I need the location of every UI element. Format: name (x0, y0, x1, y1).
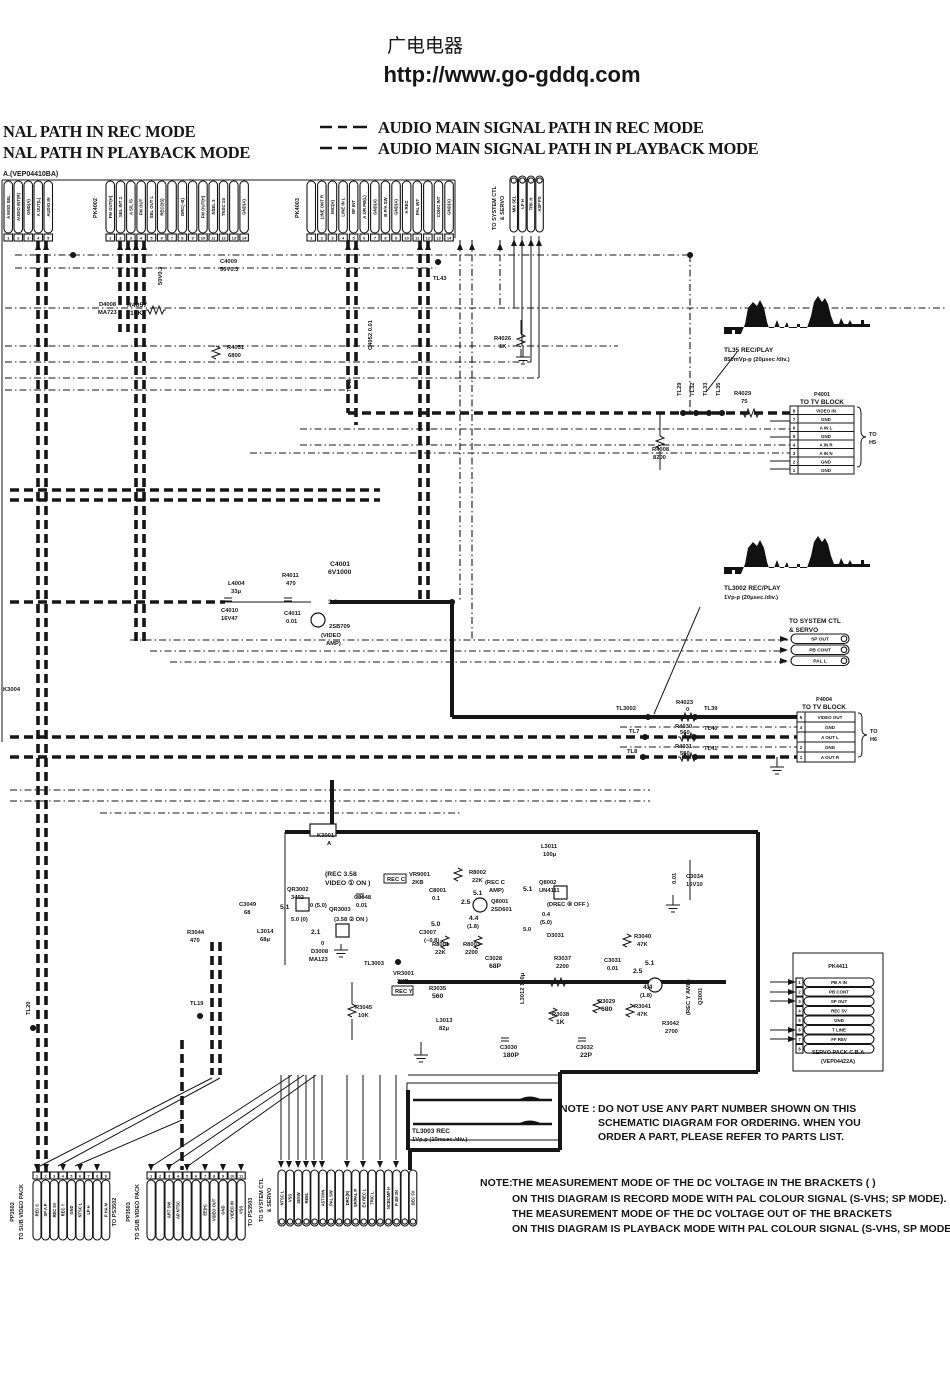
svg-text:2KB: 2KB (397, 979, 409, 985)
note-line: ON THIS DIAGRAM IS RECORD MODE WITH PAL … (512, 1193, 946, 1205)
svg-text:D4008: D4008 (99, 302, 117, 308)
svg-text:0.01: 0.01 (672, 872, 678, 884)
note-line: ORDER A PART, PLEASE REFER TO PARTS LIST… (598, 1131, 844, 1143)
connector-pin: B P/A SW8 (381, 181, 390, 241)
svg-text:68P: 68P (489, 963, 502, 970)
svg-text:EE(H): EE(H) (203, 1204, 208, 1216)
waveform-label: TL35 REC/PLAY (724, 347, 774, 354)
note-measurement: NOTE: THE MEASUREMENT MODE OF THE DC VOL… (480, 1177, 950, 1235)
svg-text:5.0: 5.0 (523, 927, 531, 933)
svg-text:GND(A): GND(A) (372, 199, 377, 215)
svg-text:RF INT: RF INT (351, 200, 356, 214)
connector-pin: NSEL 311 (209, 181, 218, 241)
connector-title: TO TV BLOCK (800, 399, 844, 406)
svg-text:A IN R: A IN R (819, 442, 833, 447)
svg-text:Q8001: Q8001 (491, 899, 509, 905)
svg-text:FM OUT(H): FM OUT(H) (201, 195, 206, 218)
svg-text:QR3003: QR3003 (329, 907, 351, 913)
svg-text:EX REC L: EX REC L (361, 1188, 366, 1207)
page-header: 广电电器 http://www.go-gddq.com (383, 35, 640, 87)
connector-pin: VIDEO IN10 (228, 1172, 236, 1240)
svg-text:K3004: K3004 (3, 687, 21, 693)
svg-text:LP H: LP H (520, 199, 525, 208)
connector-sysctl-top: TO SYSTEM CTL & SERVO MIX SELLP HTRK HAS… (492, 176, 543, 232)
connector-pin: REC Y4 (59, 1172, 67, 1240)
dest-label: H6 (870, 737, 877, 743)
transistor-video-amp (311, 613, 325, 627)
svg-text:TL43: TL43 (433, 276, 447, 282)
svg-text:TL32: TL32 (690, 382, 696, 396)
svg-text:(REC Y AMP): (REC Y AMP) (686, 979, 692, 1015)
svg-text:REC Y: REC Y (395, 989, 413, 995)
svg-text:TL39: TL39 (704, 706, 718, 712)
svg-text:5.1: 5.1 (280, 904, 290, 911)
connector-title: TO SYSTEM CTL (492, 185, 498, 230)
svg-text:(−0.8): (−0.8) (424, 938, 439, 944)
svg-text:VIDEO IN: VIDEO IN (816, 408, 836, 413)
svg-text:GND: GND (69, 1205, 74, 1214)
svg-text:560: 560 (680, 730, 690, 736)
connector-pin: 36SW (294, 1170, 302, 1226)
svg-text:50V0.3: 50V0.3 (158, 266, 164, 285)
connector-pin: REC 5V4 (796, 1007, 874, 1016)
connector-pin: TNSC 1S12 (219, 181, 228, 241)
connector-pin: AP NTSC4 (174, 1172, 182, 1240)
svg-text:REC 5V: REC 5V (831, 1009, 847, 1014)
connector-pin: A MOD SEL1 (4, 181, 13, 241)
connector-pin: FM OUT4 (137, 181, 146, 241)
connector-title: TO SYSTEM CTL (789, 618, 841, 625)
svg-text:L3011: L3011 (541, 844, 558, 850)
svg-text:TNSC 1S: TNSC 1S (221, 198, 226, 216)
svg-text:C4010: C4010 (221, 608, 238, 614)
svg-text:GND: GND (834, 1018, 844, 1023)
connector-ref: P4001 (814, 392, 830, 398)
svg-text:5.1: 5.1 (523, 886, 533, 893)
connector-pin: LP H (519, 176, 527, 232)
transistor-rec-c-amp (473, 898, 487, 912)
svg-text:A OUT R: A OUT R (821, 755, 840, 760)
connector-pin: VIDEO OUT8 (210, 1172, 218, 1240)
connector-ref: P4004 (816, 697, 833, 703)
svg-text:TL19: TL19 (190, 1001, 204, 1007)
svg-text:R3041: R3041 (634, 1004, 652, 1010)
svg-text:7: 7 (793, 417, 796, 422)
svg-text:3: 3 (793, 451, 796, 456)
svg-text:DEC 5V: DEC 5V (411, 1190, 416, 1205)
svg-text:VIDEO ① ON ): VIDEO ① ON ) (325, 879, 370, 887)
svg-text:A REC: A REC (404, 200, 409, 213)
connector-pin: SP OUT (791, 634, 849, 644)
svg-text:6: 6 (793, 425, 796, 430)
svg-text:GND: GND (821, 468, 832, 473)
legend-line1-right: AUDIO MAIN SIGNAL PATH IN REC MODE (378, 118, 704, 137)
legend: NAL PATH IN REC MODE NAL PATH IN PLAYBAC… (3, 118, 759, 162)
svg-text:C3028: C3028 (485, 956, 503, 962)
svg-text:C4009: C4009 (220, 259, 238, 265)
connector-pin: GND5 (67, 1172, 75, 1240)
svg-text:82μ: 82μ (439, 1026, 449, 1032)
svg-text:PB A IN: PB A IN (831, 980, 847, 985)
svg-text:36SW: 36SW (296, 1192, 301, 1203)
svg-text:5.0: 5.0 (431, 921, 441, 928)
svg-text:16V47: 16V47 (221, 616, 238, 622)
svg-text:12: 12 (221, 236, 226, 241)
connector-pin: SP/PAL P (352, 1170, 360, 1226)
legend-line2-left: NAL PATH IN PLAYBACK MODE (3, 143, 250, 162)
connector-cluster-a: A MOD SEL1AUDIO INT(R)2GND(A)3A OUT(L)4A… (4, 181, 53, 241)
connector-sysctl-mid: TO SYSTEM CTL & SERVO SP OUTPB CONTPAL L (789, 618, 849, 666)
connector-title: TO SUB VIDEO PACK (19, 1184, 25, 1240)
svg-text:D3008: D3008 (311, 949, 329, 955)
svg-text:TL45: TL45 (347, 378, 353, 392)
svg-text:A MOD SEL: A MOD SEL (6, 195, 11, 219)
connector-ref-pk4003: PK4003 (295, 198, 301, 218)
connector-pin: RF INT5 (349, 181, 358, 241)
svg-text:PAL L: PAL L (813, 659, 826, 665)
connector-pin: GND(A)7 (371, 181, 380, 241)
svg-text:R3044: R3044 (187, 930, 205, 936)
legend-line2-right: AUDIO MAIN SIGNAL PATH IN PLAYBACK MODE (378, 139, 759, 158)
connector-title: TO SUB VIDEO PACK (135, 1184, 141, 1240)
svg-text:R4029: R4029 (734, 391, 752, 397)
connector-pin: ASTVHN (319, 1170, 327, 1226)
connector-pin: GND(A)9 (392, 181, 401, 241)
connector-pin: 2 (156, 1172, 164, 1240)
connector-pin: AUDIO IN5 (44, 181, 53, 241)
svg-text:C3007: C3007 (419, 930, 436, 936)
connector-pin: GND(A)14 (445, 181, 454, 241)
svg-text:SP A P: SP A P (43, 1203, 48, 1216)
note-line: ON THIS DIAGRAM IS PLAYBACK MODE WITH PA… (512, 1223, 950, 1235)
svg-text:1: 1 (793, 468, 796, 473)
svg-text:47K: 47K (637, 942, 648, 948)
connector-pin: CONC INT13 (434, 181, 443, 241)
svg-text:(DREC ⑧ OFF ): (DREC ⑧ OFF ) (547, 901, 589, 908)
svg-text:SP/PAL P: SP/PAL P (353, 1189, 358, 1208)
connector-pin (335, 1170, 343, 1226)
note-line: SCHEMATIC DIAGRAM FOR ORDERING. WHEN YOU (598, 1117, 861, 1129)
svg-text:AUDIO INT(R): AUDIO INT(R) (16, 192, 21, 220)
svg-text:0: 0 (686, 707, 689, 713)
svg-text:14: 14 (242, 236, 247, 241)
svg-text:R3029: R3029 (598, 999, 616, 1005)
svg-text:AMP): AMP) (326, 641, 341, 647)
connector-pin (311, 1170, 319, 1226)
svg-text:5.1: 5.1 (473, 890, 483, 897)
svg-text:8: 8 (793, 408, 796, 413)
svg-text:FF REV: FF REV (831, 1037, 847, 1042)
dest-label: TO (870, 729, 878, 735)
svg-text:(3.58 ② ON ): (3.58 ② ON ) (334, 916, 368, 923)
svg-text:12: 12 (426, 236, 431, 241)
svg-text:R3037: R3037 (554, 956, 571, 962)
note-ordering: NOTE : DO NOT USE ANY PART NUMBER SHOWN … (560, 1103, 861, 1143)
svg-text:1K: 1K (556, 1019, 565, 1026)
connector-pin: SP A P2 (42, 1172, 50, 1240)
svg-text:R3042: R3042 (662, 1021, 679, 1027)
connector-pin: SEL OUT L5 (147, 181, 156, 241)
svg-text:4: 4 (793, 442, 796, 447)
connector-pin: AUDIO INT(R)2 (14, 181, 23, 241)
svg-text:VIDEO OUT: VIDEO OUT (818, 715, 843, 720)
connector-pin: PB A IN1 (796, 978, 874, 987)
svg-text:A IN N: A IN N (819, 451, 832, 456)
connector-pin: 12 (424, 181, 433, 241)
svg-text:680: 680 (601, 1006, 613, 1013)
connector-pin: T LINE6 (796, 1026, 874, 1035)
svg-text:R4026: R4026 (494, 336, 512, 342)
waveform-tl35: TL35 REC/PLAY 850mVp-p (20μsec /div.) (724, 296, 870, 363)
dest-label: H5 (869, 440, 876, 446)
svg-text:GND: GND (821, 459, 832, 464)
svg-text:75: 75 (741, 399, 748, 405)
waveform-label: TL3003 REC (412, 1128, 450, 1135)
svg-text:R3035: R3035 (429, 986, 447, 992)
svg-text:MIC(H): MIC(H) (330, 200, 335, 214)
svg-text:Q3001: Q3001 (698, 987, 704, 1005)
svg-text:GND: GND (221, 1205, 226, 1214)
svg-text:MA723: MA723 (98, 310, 117, 316)
svg-text:560: 560 (680, 751, 690, 757)
svg-text:3.6: 3.6 (328, 599, 338, 606)
svg-text:(REC 3.58: (REC 3.58 (325, 871, 357, 878)
svg-text:CONC INT: CONC INT (436, 196, 441, 217)
svg-text:SEL INT 2: SEL INT 2 (118, 196, 123, 217)
part-labels: C4009 50V0.3 50V0.3 D4008 MA723 R4057 10… (3, 259, 752, 1059)
note-label: NOTE: (480, 1177, 513, 1189)
svg-text:5.1: 5.1 (645, 960, 655, 967)
svg-text:VR9001: VR9001 (409, 872, 431, 878)
connector-pin (401, 1170, 409, 1226)
svg-text:68: 68 (244, 910, 251, 916)
svg-text:GND: GND (821, 417, 832, 422)
svg-text:REC(3S): REC(3S) (159, 198, 164, 216)
connector-pin: DEC 5V (409, 1170, 417, 1226)
svg-text:2SD601: 2SD601 (491, 907, 513, 913)
connector-pin: 1 (307, 181, 316, 241)
svg-text:NTSC L: NTSC L (279, 1190, 284, 1205)
note-line: THE MEASUREMENT MODE OF THE DC VOLTAGE O… (512, 1208, 892, 1220)
connector-pin: FM OUT(H)1 (106, 181, 115, 241)
connector-title: TO SYSTEM CTL (259, 1177, 265, 1222)
connector-pin: P 4M 3N (393, 1170, 401, 1226)
svg-text:4.4: 4.4 (643, 984, 653, 991)
svg-text:K3001: K3001 (317, 833, 335, 839)
connector-pin: PAL L (791, 656, 849, 666)
connector-pin: MIC(H)3 (328, 181, 337, 241)
svg-text:C3049: C3049 (239, 902, 257, 908)
connector-pin: NCBCMP H (385, 1170, 393, 1226)
svg-text:ART SW: ART SW (167, 1202, 172, 1218)
svg-text:2SB709: 2SB709 (329, 624, 351, 630)
svg-text:SP OUT: SP OUT (831, 999, 848, 1004)
connector-pin: 5 (183, 1172, 191, 1240)
svg-text:VSS: VSS (239, 1206, 244, 1214)
svg-text:GND(A): GND(A) (447, 199, 452, 215)
connector-pin: ASP PS (536, 176, 544, 232)
svg-text:R4051: R4051 (227, 345, 245, 351)
connector-pin: VSS11 (237, 1172, 245, 1240)
board-outline: A.(VEP04410BA) (2, 171, 455, 742)
svg-text:R3038: R3038 (552, 1012, 570, 1018)
connector-pin: EX REC L (360, 1170, 368, 1226)
svg-text:C4011: C4011 (284, 611, 302, 617)
svg-text:VSS: VSS (288, 1194, 293, 1202)
connector-pin: VSS (286, 1170, 294, 1226)
svg-text:5: 5 (800, 715, 803, 720)
svg-text:TL40: TL40 (704, 726, 718, 732)
svg-text:GND: GND (825, 745, 836, 750)
svg-text:47K: 47K (637, 1012, 648, 1018)
connector-pin: PAL INT11 (413, 181, 422, 241)
site-name: 广电电器 (387, 35, 463, 57)
connector-sysctl-bottom: TO SYSTEM CTL & SERVO NTSC LVSS36SWREELA… (259, 1170, 417, 1226)
svg-text:R8002: R8002 (469, 870, 486, 876)
dest-label: TO PS3502 (112, 1198, 118, 1227)
svg-text:TL7: TL7 (629, 729, 639, 735)
svg-text:GND(A): GND(A) (26, 199, 31, 215)
svg-text:2200: 2200 (556, 964, 569, 970)
transistor-qr3003 (336, 924, 349, 937)
svg-text:2700: 2700 (665, 1029, 678, 1035)
svg-text:10K: 10K (130, 310, 143, 317)
svg-text:A OUT(L): A OUT(L) (36, 197, 41, 216)
svg-text:0.01: 0.01 (286, 619, 298, 625)
connector-pin: SEL INT 22 (116, 181, 125, 241)
waveform-tl3003: TL3003 REC 1Vp.p (10msec./div.) (407, 1083, 560, 1143)
svg-text:68μ: 68μ (260, 937, 270, 943)
svg-text:TL3003: TL3003 (364, 961, 385, 967)
svg-text:14: 14 (447, 236, 452, 241)
svg-text:0: 0 (321, 941, 324, 947)
svg-text:100μ: 100μ (543, 852, 557, 858)
svg-text:33μ: 33μ (231, 589, 241, 595)
site-url: http://www.go-gddq.com (383, 62, 640, 87)
svg-text:180P: 180P (503, 1052, 519, 1059)
svg-text:1K: 1K (499, 344, 507, 350)
connector-pin: 9 (188, 181, 197, 241)
connector-pin: PB CONT (791, 645, 849, 655)
svg-text:REC 5V: REC 5V (52, 1202, 57, 1217)
connector-pin: EE(H)7 (201, 1172, 209, 1240)
svg-text:10: 10 (230, 1173, 235, 1178)
svg-text:UN4111: UN4111 (539, 888, 560, 894)
svg-text:REC C: REC C (35, 1204, 40, 1217)
connector-pin (376, 1170, 384, 1226)
waveform-scale: 850mVp-p (20μsec /div.) (724, 357, 790, 363)
svg-text:AMP): AMP) (489, 888, 504, 894)
connector-pin: DRC(R) (344, 1170, 352, 1226)
svg-text:A S/L /S: A S/L /S (128, 199, 133, 215)
svg-text:4: 4 (800, 725, 803, 730)
connector-pin: FF REV7 (796, 1035, 874, 1044)
svg-text:22P: 22P (580, 1052, 593, 1059)
svg-text:A OUT L: A OUT L (821, 735, 839, 740)
dest-label: TO PS3503 (248, 1198, 254, 1227)
svg-text:C3034: C3034 (686, 874, 704, 880)
svg-text:D3031: D3031 (547, 933, 565, 939)
tv-block-p4004: P4004 TO TV BLOCK 5VIDEO OUT 4GND A OUT … (797, 697, 878, 762)
connector-pin: 8 (93, 1172, 101, 1240)
svg-text:R3040: R3040 (634, 934, 651, 940)
tv-block-p4001: P4001 TO TV BLOCK 8VIDEO IN 7GND 6A IN L… (790, 392, 877, 474)
svg-text:10: 10 (404, 236, 409, 241)
svg-text:R8003: R8003 (463, 942, 481, 948)
svg-text:2.5: 2.5 (633, 968, 643, 975)
svg-text:B P/A SW: B P/A SW (383, 196, 388, 216)
svg-text:GND(A): GND(A) (242, 199, 247, 215)
svg-text:0 (5.0): 0 (5.0) (310, 903, 327, 909)
svg-text:0.01: 0.01 (607, 966, 619, 972)
connector-ref: PP3502 (10, 1202, 16, 1222)
svg-text:ASP PS: ASP PS (537, 196, 542, 211)
svg-text:C3032: C3032 (576, 1045, 593, 1051)
svg-text:2: 2 (800, 745, 803, 750)
footer-label: SERVO PACK C.B.A (812, 1050, 864, 1056)
svg-text:R4031: R4031 (675, 744, 693, 750)
svg-text:NSEL 3: NSEL 3 (211, 199, 216, 215)
connector-pin: PAL SW (327, 1170, 335, 1226)
connector-pp3502: PP3502 TO SUB VIDEO PACK REC C1SP A P2RE… (10, 1172, 118, 1240)
svg-text:DRC(~B): DRC(~B) (180, 198, 185, 216)
connector-pin: 6 (192, 1172, 200, 1240)
svg-text:TL35: TL35 (716, 382, 722, 396)
connector-pin: 13 (230, 181, 239, 241)
connector-pin: DRC(~B)8 (178, 181, 187, 241)
connector-pin: FM OUT(H)10 (199, 181, 208, 241)
svg-text:8200: 8200 (653, 455, 666, 461)
svg-text:6V1000: 6V1000 (328, 569, 352, 576)
svg-text:13: 13 (436, 236, 441, 241)
svg-text:MIX SEL: MIX SEL (511, 195, 516, 212)
svg-text:22K: 22K (435, 950, 446, 956)
svg-text:TL29: TL29 (677, 382, 683, 396)
svg-text:10: 10 (201, 236, 206, 241)
svg-text:L3012 150μ: L3012 150μ (520, 972, 526, 1004)
svg-text:C3031: C3031 (604, 958, 622, 964)
connector-pin: TRK H (527, 176, 535, 232)
svg-text:TL33: TL33 (703, 382, 709, 396)
svg-text:50V0.3: 50V0.3 (220, 267, 239, 273)
svg-text:(1.8): (1.8) (467, 924, 479, 930)
svg-text:LINE IN L: LINE IN L (341, 197, 346, 216)
connector-title: & SERVO (500, 195, 506, 220)
svg-text:(REC C: (REC C (485, 880, 506, 886)
svg-text:C4052 0.01: C4052 0.01 (368, 319, 374, 350)
svg-text:0.1: 0.1 (432, 896, 441, 902)
svg-text:4.4: 4.4 (469, 915, 479, 922)
note-line: DO NOT USE ANY PART NUMBER SHOWN ON THIS (598, 1103, 856, 1115)
svg-text:VR3001: VR3001 (393, 971, 415, 977)
svg-text:QR3002: QR3002 (287, 887, 309, 893)
svg-text:5.0 (0): 5.0 (0) (291, 917, 308, 923)
svg-text:C3048: C3048 (354, 895, 372, 901)
svg-text:TL20: TL20 (26, 1001, 32, 1015)
svg-text:6800: 6800 (228, 353, 241, 359)
connector-title: & SERVO (789, 627, 818, 634)
connector-pin: GND(A)3 (24, 181, 33, 241)
connector-pin: 7 (168, 181, 177, 241)
svg-text:R4023: R4023 (676, 700, 694, 706)
connector-pin: LINE ONT R2 (318, 181, 327, 241)
svg-text:PB CONT: PB CONT (809, 648, 831, 654)
dest-label: TO (869, 432, 877, 438)
connector-pin: ART SW3 (165, 1172, 173, 1240)
svg-text:2.5: 2.5 (461, 899, 471, 906)
svg-text:(1.8): (1.8) (640, 993, 652, 999)
connector-pin: A OUT(L)4 (34, 181, 43, 241)
